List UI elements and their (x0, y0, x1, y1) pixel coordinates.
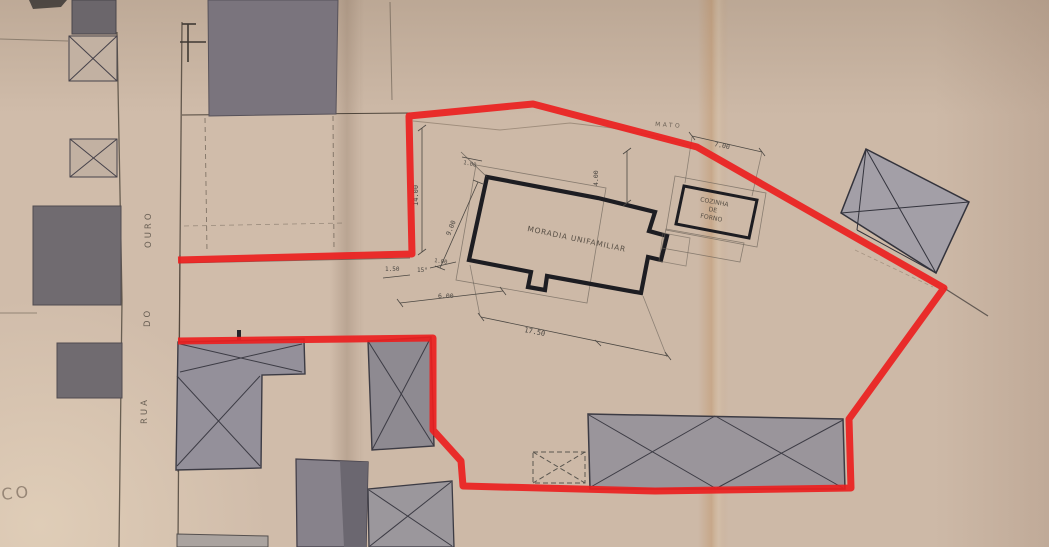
street-word-do: DO (143, 308, 153, 327)
building-w-solid (33, 206, 121, 305)
building-nw-solid (72, 0, 116, 34)
building-dark-3d (296, 459, 368, 547)
site-plan-svg: MORADIA UNIFAMILIAR COZINHA DE FORNO (0, 0, 1049, 547)
building-hatched-mid (368, 337, 434, 450)
paper-background (0, 0, 1049, 547)
corner-text-fragment: CO (0, 482, 32, 504)
site-plan-scan: MORADIA UNIFAMILIAR COZINHA DE FORNO (0, 0, 1049, 547)
paper-right-shade (935, 0, 1049, 547)
street-word-rua: RUA (140, 397, 150, 424)
building-x-small-2 (70, 139, 117, 177)
dim-1-50: 1.50 (385, 266, 400, 273)
building-x-small-1 (69, 36, 117, 81)
building-hatched-s (368, 481, 454, 547)
building-se-large-hatched (588, 414, 845, 489)
building-n-large (208, 0, 338, 116)
paper-top-shade (0, 0, 1049, 115)
dim-4-00: 4.00 (592, 170, 600, 186)
building-strip-s (177, 534, 268, 547)
dim-15-deg: 15° (417, 267, 428, 274)
dim-6-00: 6.00 (438, 292, 454, 300)
building-sw-solid (57, 343, 122, 398)
street-word-ouro: OURO (144, 210, 154, 248)
